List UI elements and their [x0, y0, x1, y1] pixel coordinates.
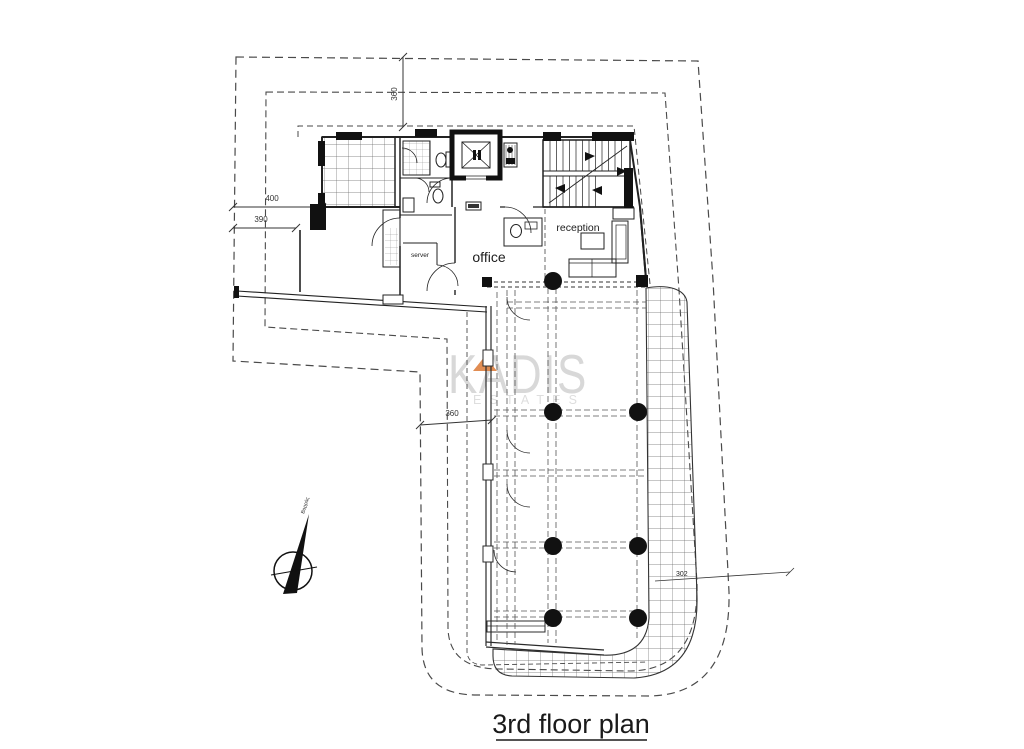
- dimension-top-label: 360: [390, 87, 399, 101]
- bench: [487, 621, 545, 632]
- floor-plan-canvas: KADIS ESTATES 360 400 390 360 302: [0, 0, 1024, 749]
- office-room-label: office: [472, 249, 505, 265]
- reception-room-label: reception: [556, 222, 599, 234]
- dimension-left-lower-label: 390: [254, 215, 268, 224]
- terrace: [483, 272, 697, 678]
- brand-watermark: KADIS ESTATES: [448, 343, 588, 407]
- toilet: [436, 153, 446, 167]
- balcony-parapet: [237, 291, 487, 312]
- drawing-title: 3rd floor plan: [492, 709, 650, 740]
- fixture-symbol: [504, 143, 517, 167]
- skylight-grid-room: [322, 137, 395, 207]
- floor-plan-page: KADIS ESTATES 360 400 390 360 302: [0, 0, 1024, 749]
- reception-furniture: [569, 208, 634, 277]
- north-arrow: Βορράς: [271, 496, 317, 594]
- office-desk: [504, 218, 542, 246]
- staircase: [543, 140, 630, 207]
- north-arrow-needle-icon: [283, 514, 309, 594]
- dimension-mid-label: 360: [445, 409, 459, 418]
- sink: [403, 198, 414, 212]
- dimension-annotations: 360 400 390 360 302: [229, 53, 794, 581]
- terrace-columns: [544, 272, 647, 627]
- watermark-tagline-text: ESTATES: [473, 393, 585, 407]
- pergola-lines: [494, 288, 646, 645]
- toilet: [433, 189, 443, 203]
- north-arrow-label: Βορράς: [299, 496, 311, 515]
- server-room-label: server: [411, 252, 430, 259]
- dimension-left-upper-label: 400: [265, 194, 279, 203]
- drawing-title-text: 3rd floor plan: [492, 709, 650, 739]
- elevator: [452, 132, 500, 181]
